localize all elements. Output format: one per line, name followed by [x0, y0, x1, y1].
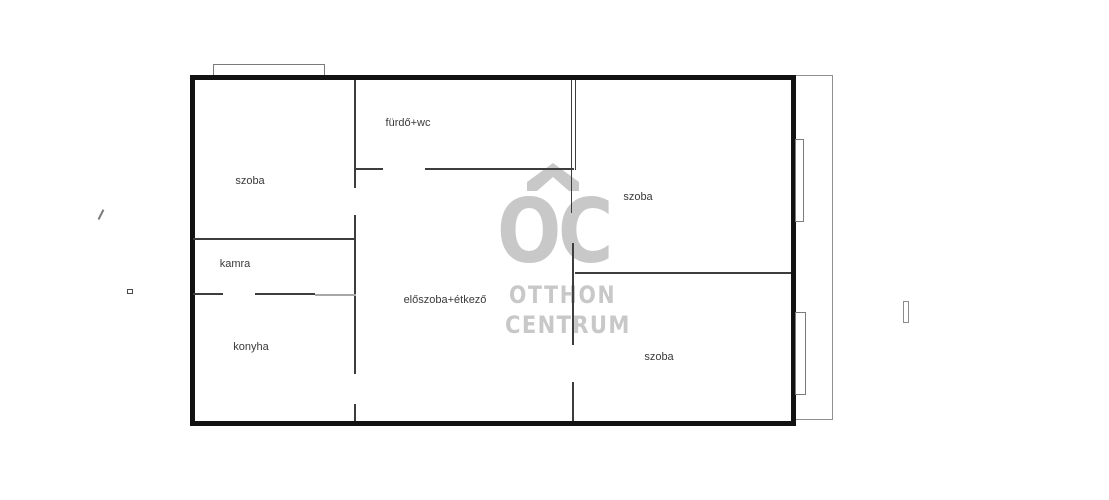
wall-konyha-right-lower: [354, 404, 356, 421]
wall-center-upper-outer: [571, 80, 572, 213]
room-label-kamra: kamra: [220, 258, 251, 270]
room-label-szoba-bottom-right: szoba: [644, 351, 673, 363]
room-label-furdo-wc: fürdő+wc: [386, 117, 431, 129]
wall-center-lower: [572, 382, 574, 421]
wall-kamra-bottom-right: [255, 293, 315, 295]
wall-center-upper-inner: [575, 80, 576, 170]
small-rect-mark-left: [127, 289, 133, 294]
wall-szoba-right-divider: [575, 272, 791, 274]
window-right-top: [795, 139, 804, 222]
floor-plan: OC OTTHON CENTRUM szoba fürdő+wc kamra k…: [0, 0, 1109, 500]
window-right-bottom: [795, 312, 806, 395]
room-label-konyha: konyha: [233, 341, 268, 353]
wall-kamra-bottom-left: [193, 293, 223, 295]
wall-kamra-bottom-door: [315, 294, 356, 296]
room-label-eloszoba-etkezo: előszoba+étkező: [404, 294, 487, 306]
outer-wall: [190, 75, 796, 426]
wall-furdo-bottom-left: [356, 168, 383, 170]
wall-szoba-left-right-upper: [354, 80, 356, 188]
wall-kamra-top: [193, 238, 356, 240]
slash-mark: [98, 209, 104, 219]
room-label-szoba-top-left: szoba: [235, 175, 264, 187]
door-symbol-right: [903, 301, 909, 323]
wall-center-middle: [572, 243, 574, 345]
room-label-szoba-top-right: szoba: [623, 191, 652, 203]
wall-furdo-bottom-right: [425, 168, 574, 170]
